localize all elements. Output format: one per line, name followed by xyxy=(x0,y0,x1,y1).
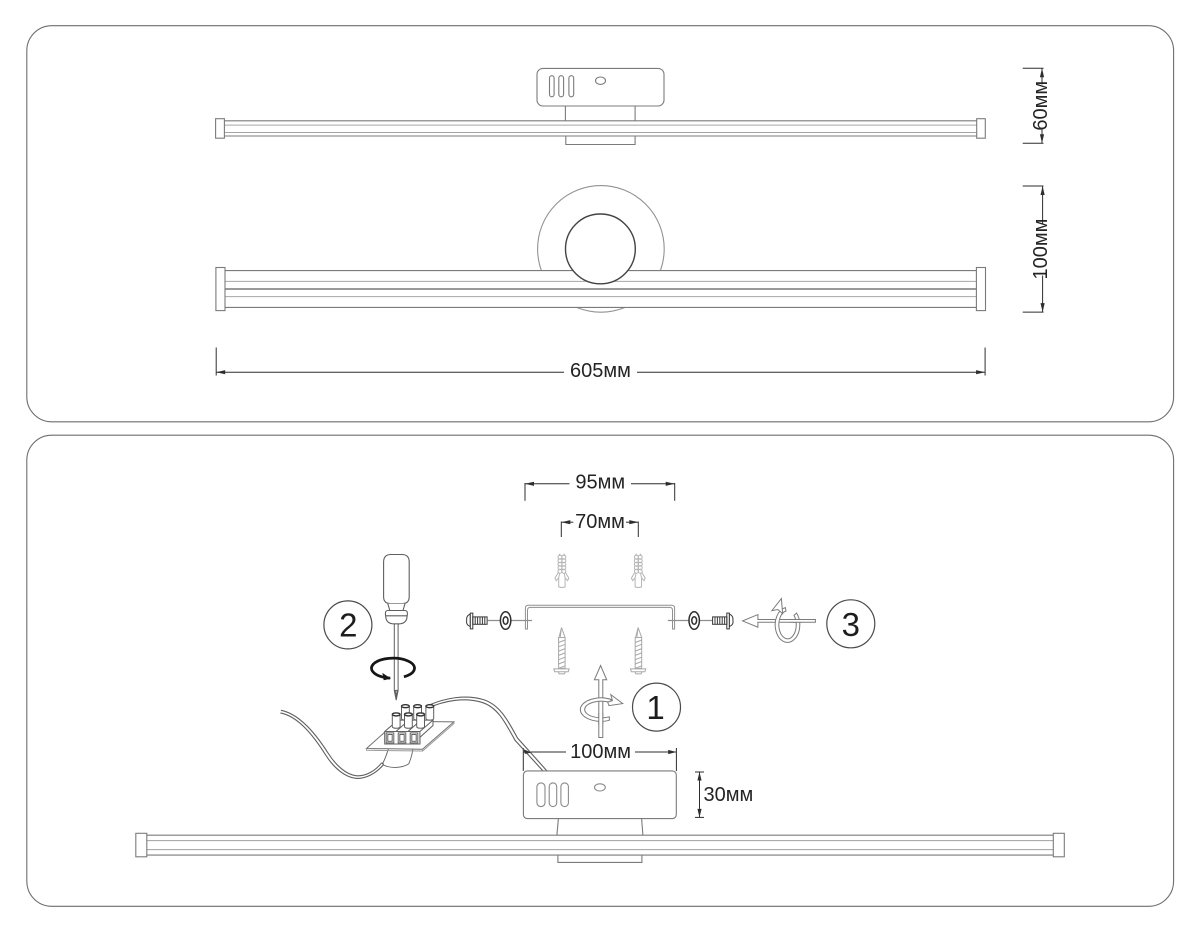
svg-text:1: 1 xyxy=(646,689,664,726)
svg-text:605мм: 605мм xyxy=(570,360,631,382)
svg-text:70мм: 70мм xyxy=(575,511,625,533)
svg-text:100мм: 100мм xyxy=(570,741,631,763)
svg-text:3: 3 xyxy=(842,606,860,643)
svg-text:95мм: 95мм xyxy=(575,471,625,493)
svg-text:2: 2 xyxy=(339,606,357,643)
svg-text:30мм: 30мм xyxy=(704,784,754,806)
svg-text:100мм: 100мм xyxy=(1030,219,1052,280)
svg-text:60мм: 60мм xyxy=(1030,81,1052,131)
